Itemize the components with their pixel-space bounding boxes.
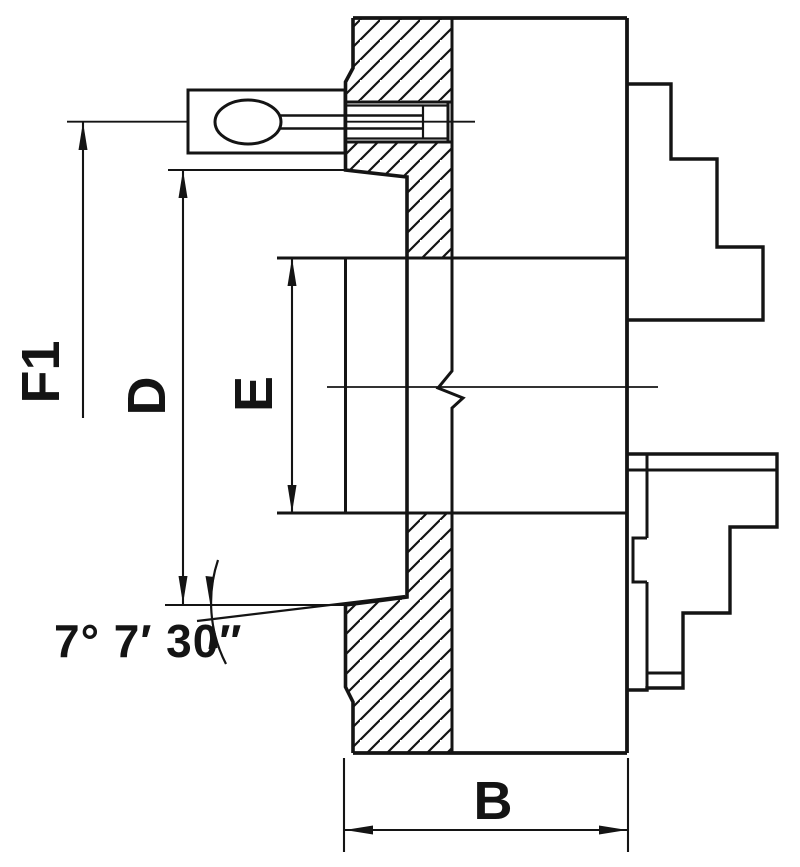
label-taper-angle: 7° 7′ 30″ [54,615,242,667]
label-e: E [224,376,284,412]
technical-drawing-canvas: F1 D E B 7° 7′ 30″ [0,0,800,867]
label-d: D [117,377,177,416]
label-b: B [474,771,513,831]
drawing-page: F1 D E B 7° 7′ 30″ [0,0,800,867]
wrench-handle-body [188,90,345,153]
hatch-backplate-upper [346,18,453,102]
label-f1: F1 [11,340,71,403]
